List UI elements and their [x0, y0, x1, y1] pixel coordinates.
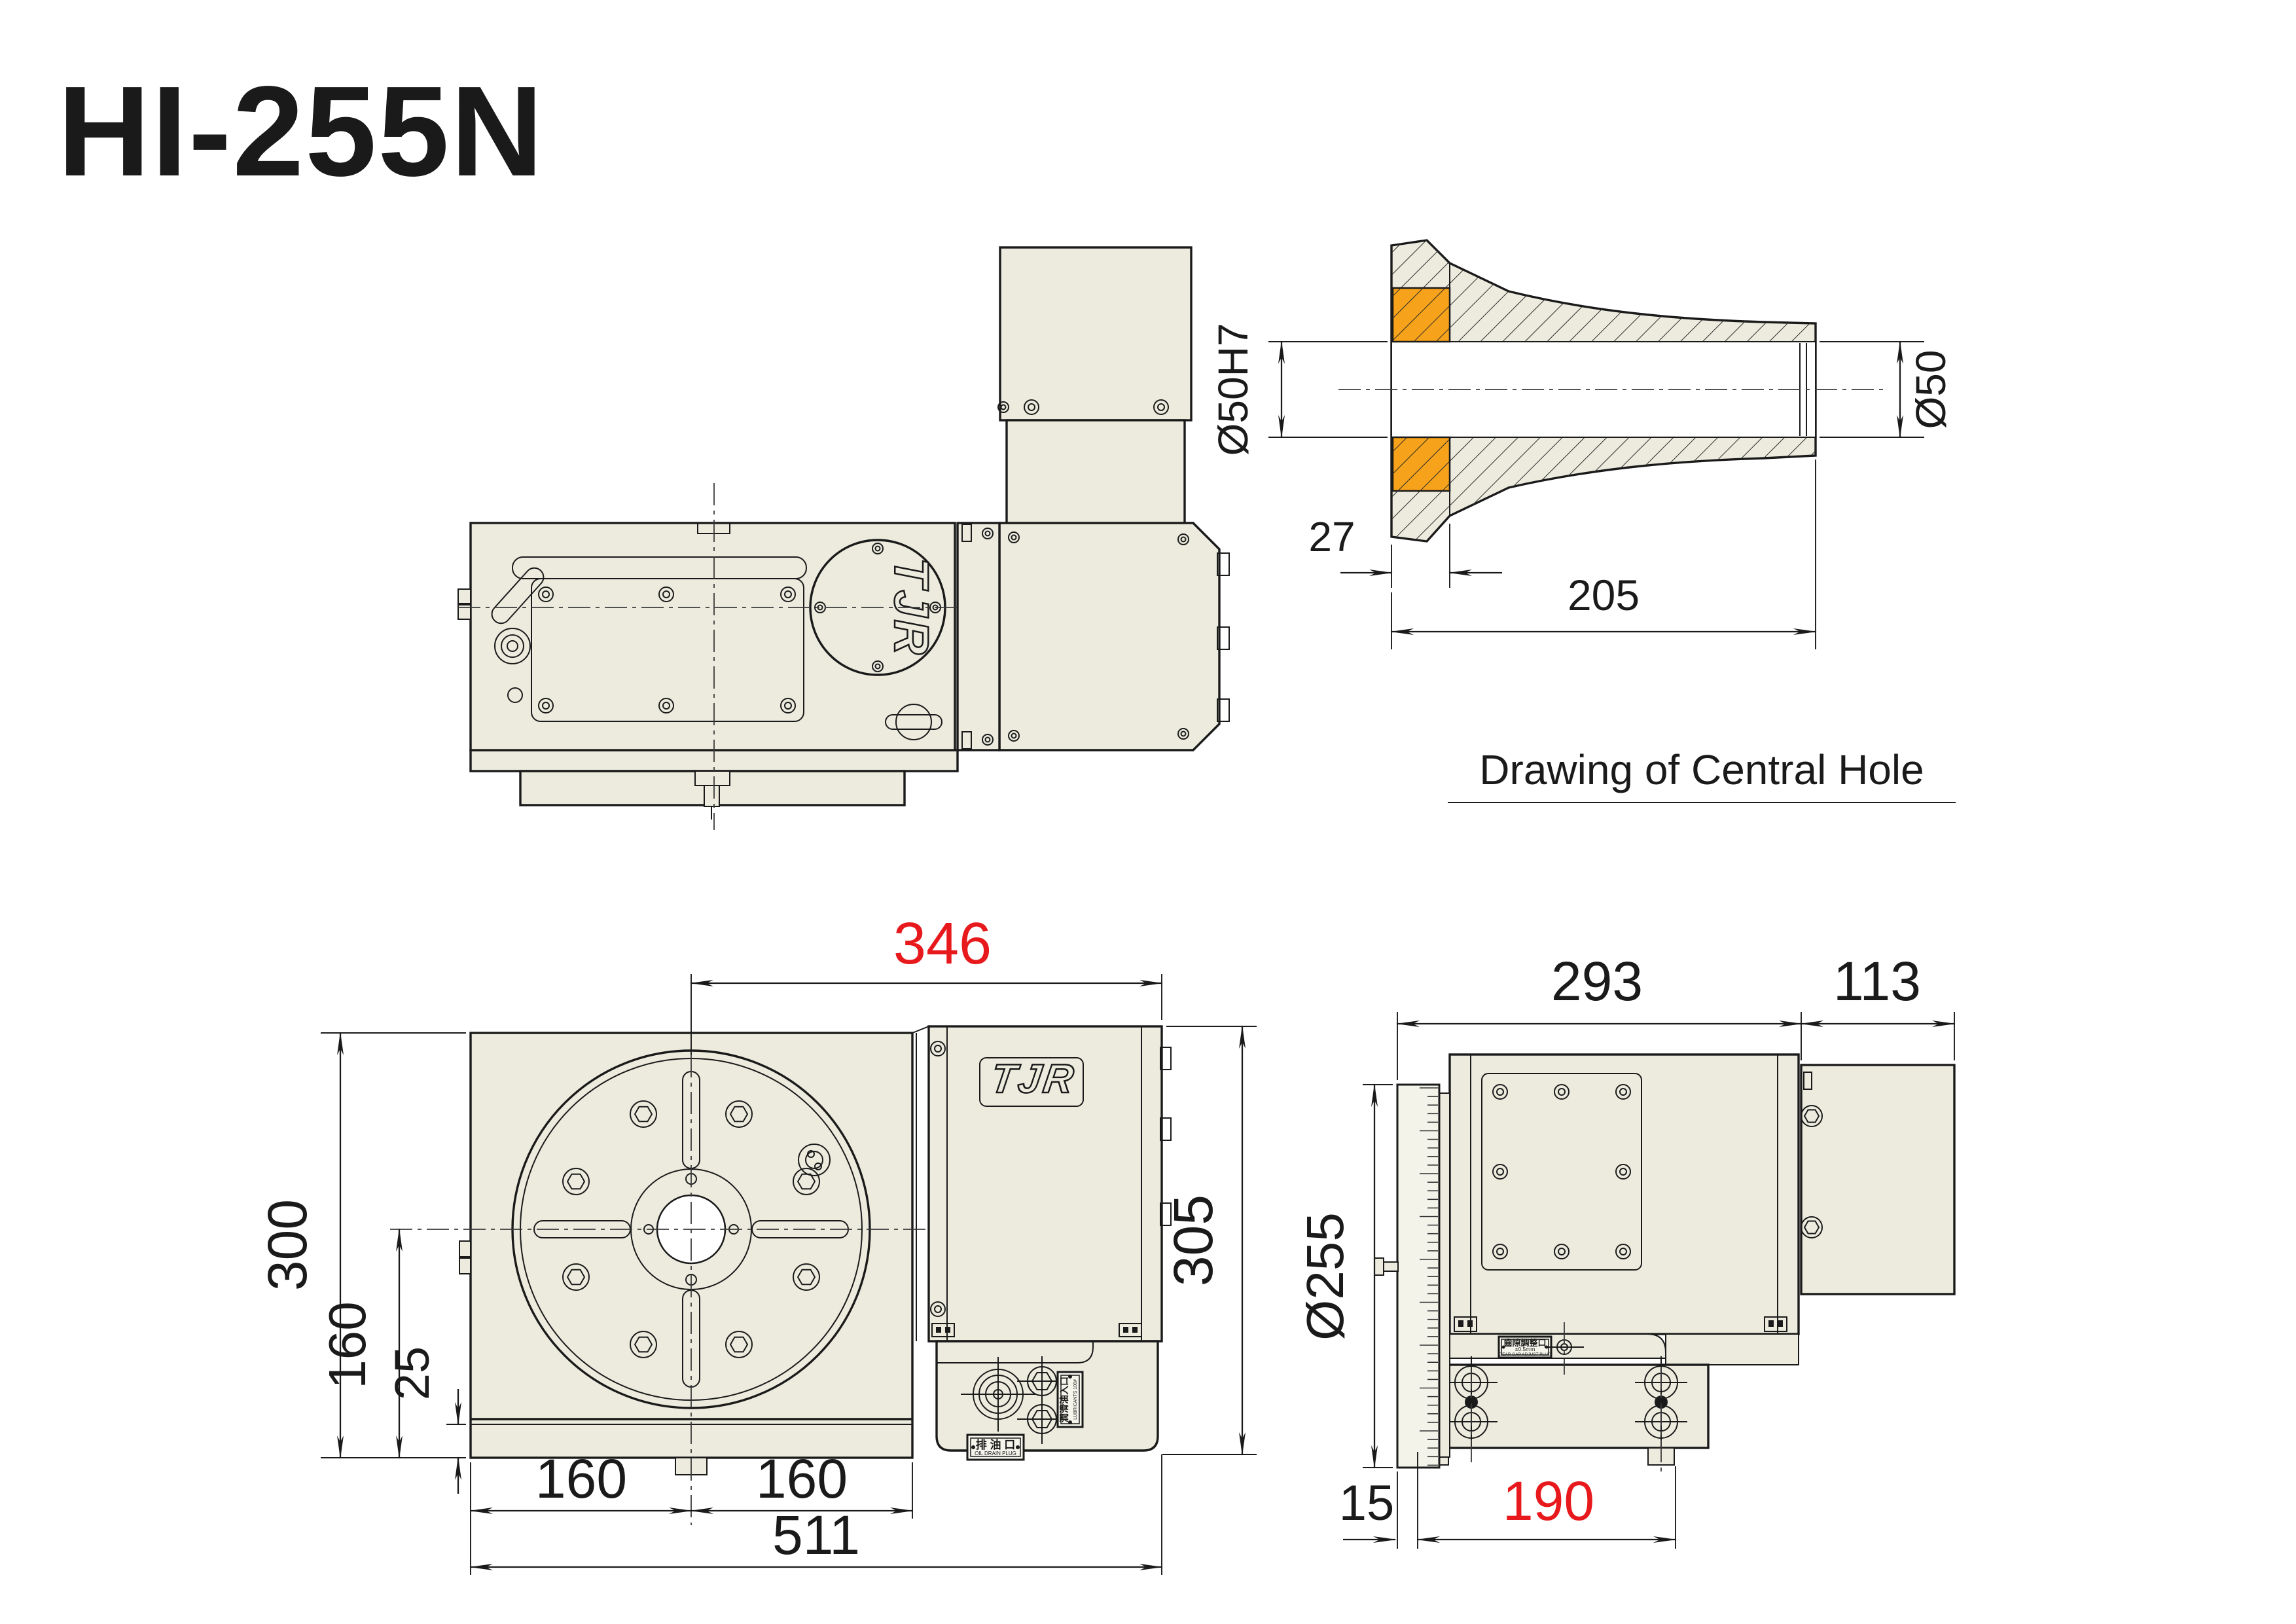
svg-text:Ø255: Ø255 — [1296, 1212, 1354, 1341]
svg-text:190: 190 — [1503, 1470, 1594, 1532]
svg-text:LUBRICANTS 100#: LUBRICANTS 100# — [1073, 1379, 1078, 1420]
side-motor — [1801, 1065, 1954, 1294]
svg-text:205: 205 — [1568, 571, 1640, 619]
svg-text:15: 15 — [1339, 1475, 1395, 1531]
svg-text:GEAR GAP ADJUST PLUG: GEAR GAP ADJUST PLUG — [1499, 1352, 1551, 1357]
dim-bore-tolerance: Ø50H7 — [1210, 323, 1388, 456]
motor-column — [1007, 420, 1185, 525]
lubricant-plate: 潤滑油入口 LUBRICANTS 100# — [1058, 1372, 1083, 1427]
dim-center-to-base: 160 — [318, 1229, 399, 1458]
tjr-logo-front-view: TJR — [988, 1056, 1079, 1102]
svg-text:300: 300 — [257, 1199, 318, 1291]
svg-text:113: 113 — [1833, 950, 1921, 1012]
svg-text:Ø50H7: Ø50H7 — [1210, 323, 1257, 456]
svg-text:346: 346 — [893, 911, 992, 977]
dim-height-right: 305 — [1162, 1026, 1257, 1454]
svg-text:160: 160 — [535, 1448, 627, 1509]
svg-text:27: 27 — [1308, 513, 1355, 560]
svg-text:OIL DRAIN PLUG: OIL DRAIN PLUG — [975, 1451, 1016, 1456]
side-body — [1450, 1055, 1799, 1334]
dim-motor-depth: 113 — [1801, 950, 1954, 1060]
dim-strip: 25 — [385, 1346, 466, 1494]
dim-base-depth: 190 — [1418, 1466, 1676, 1549]
side-lower-right — [1666, 1334, 1799, 1365]
svg-text:排 油 口: 排 油 口 — [976, 1438, 1015, 1451]
central-hole-view: Ø50H7 Ø50 27 205 Drawing of Central Hole — [1210, 240, 1956, 803]
right-side-view: 齒隙調整口 ±0.5mm GEAR GAP ADJUST PLUG 293 11… — [1296, 950, 1954, 1549]
handle-pin — [1382, 1262, 1398, 1271]
gear-gap-plate: 齒隙調整口 ±0.5mm GEAR GAP ADJUST PLUG — [1499, 1337, 1551, 1358]
oil-drain-plate: 排 油 口 OIL DRAIN PLUG — [967, 1435, 1024, 1460]
base-key-tab — [695, 771, 730, 785]
technical-drawing-svg: HI-255N — [0, 0, 2296, 1624]
front-view: TJR — [257, 911, 1257, 1575]
svg-text:25: 25 — [385, 1346, 439, 1400]
top-side-view: TJR — [458, 247, 1229, 830]
dim-table-diameter: Ø255 — [1296, 1085, 1393, 1468]
base-key-stem — [704, 785, 719, 806]
svg-text:±0.5mm: ±0.5mm — [1515, 1346, 1535, 1352]
svg-text:305: 305 — [1162, 1195, 1224, 1286]
svg-text:511: 511 — [772, 1504, 860, 1566]
page-title: HI-255N — [58, 60, 545, 203]
engineering-drawing-page: HI-255N — [0, 0, 2296, 1624]
junction-flange — [958, 523, 999, 750]
svg-text:Ø50: Ø50 — [1907, 350, 1954, 429]
dim-bore: Ø50 — [1820, 342, 1954, 437]
central-hole-caption: Drawing of Central Hole — [1479, 746, 1924, 793]
motor-top-cover — [1000, 247, 1191, 420]
svg-text:160: 160 — [318, 1301, 376, 1388]
svg-text:293: 293 — [1551, 950, 1643, 1012]
motor-lower-housing — [999, 523, 1219, 750]
svg-text:潤滑油入口: 潤滑油入口 — [1059, 1377, 1069, 1422]
svg-text:160: 160 — [756, 1448, 848, 1509]
